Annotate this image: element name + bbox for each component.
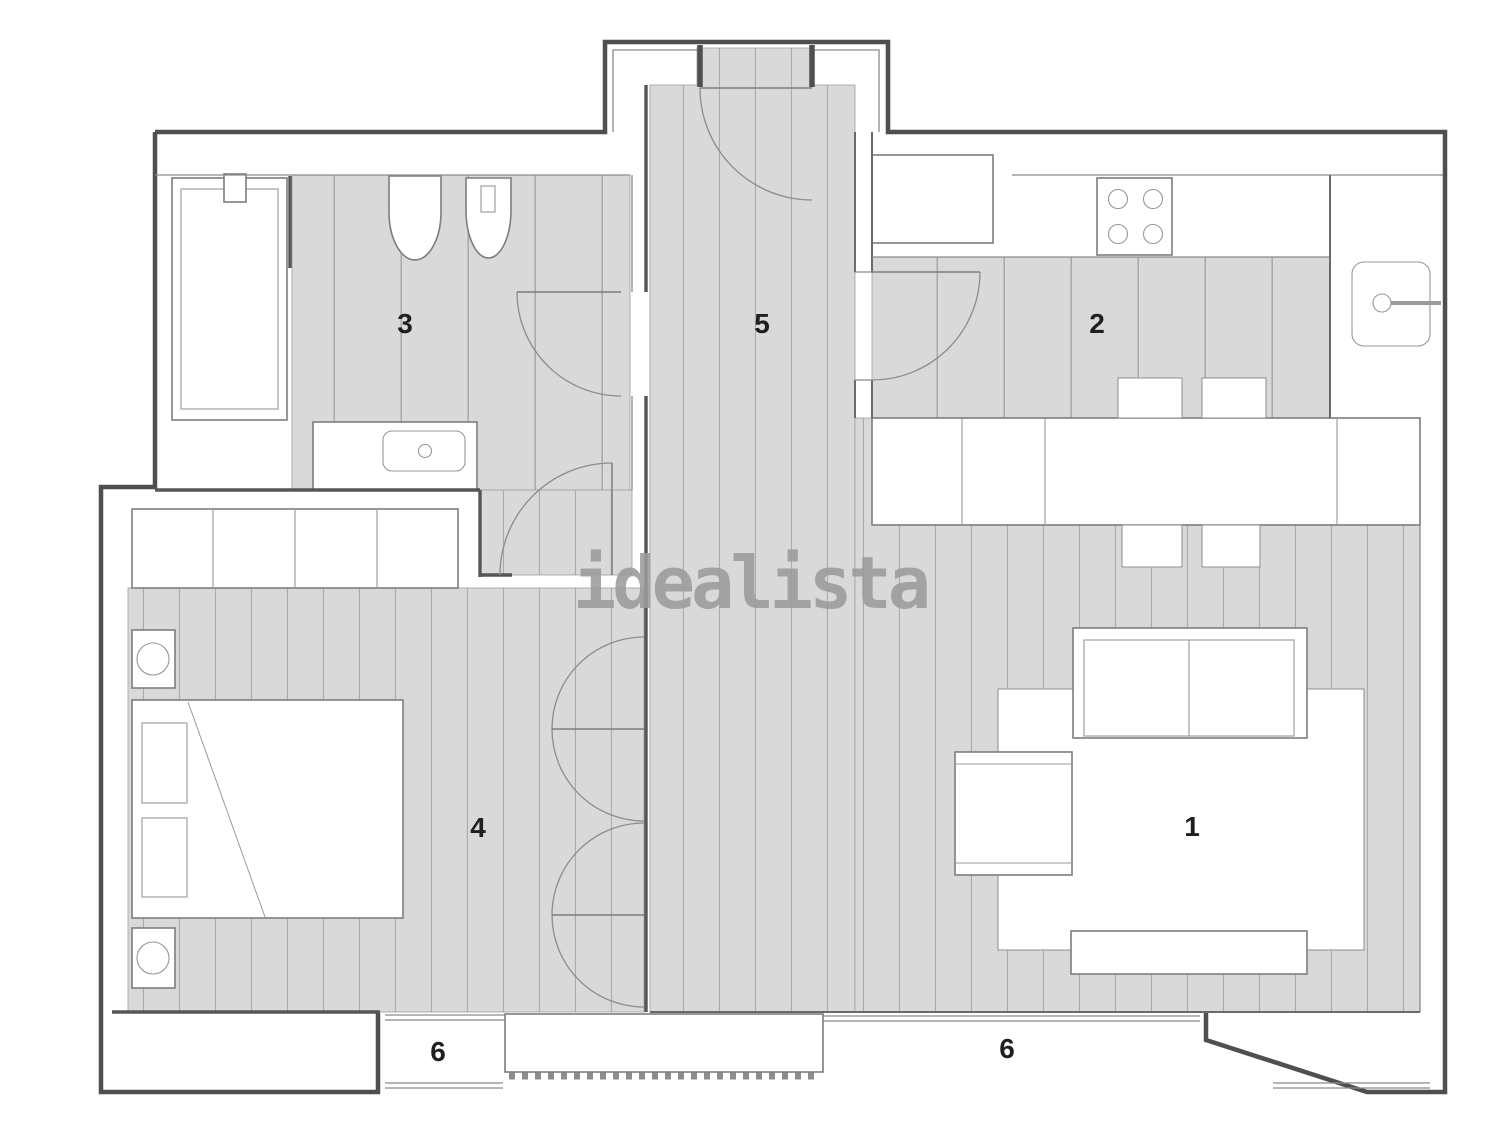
stool	[1118, 378, 1182, 418]
kitchen-island	[872, 418, 1420, 525]
stool	[1202, 378, 1266, 418]
awning	[505, 1014, 823, 1072]
side-table	[955, 752, 1072, 875]
floor-plan-page: 1 2 3 4 5 6 6 idealista	[0, 0, 1500, 1125]
terrace-elements	[385, 1014, 1430, 1088]
room-label-hall: 5	[754, 308, 770, 339]
hall-floor	[650, 48, 855, 1012]
room-label-terrace-left: 6	[430, 1036, 446, 1067]
bed-icon	[132, 700, 403, 918]
floor-plan: 1 2 3 4 5 6 6 idealista	[0, 0, 1500, 1125]
watermark: idealista	[573, 541, 927, 625]
room-label-kitchen: 2	[1089, 308, 1105, 339]
coffee-table	[1071, 931, 1307, 974]
room-label-bedroom: 4	[470, 812, 486, 843]
room-label-bathroom: 3	[397, 308, 413, 339]
stool	[1202, 525, 1260, 567]
room-label-living: 1	[1184, 811, 1200, 842]
washbasin-counter	[313, 422, 477, 490]
railing-left	[385, 1083, 503, 1088]
bathtub-faucet-icon	[224, 174, 246, 202]
sofa-icon	[1073, 628, 1307, 738]
bathtub-icon	[172, 178, 287, 420]
tub-surround	[157, 420, 290, 489]
kitchen-west-wall	[855, 132, 872, 418]
room-label-terrace-right: 6	[999, 1033, 1015, 1064]
fridge-icon	[872, 155, 993, 243]
toilet-icon	[389, 176, 441, 260]
stool	[1122, 525, 1182, 567]
stove-icon	[1097, 178, 1172, 255]
